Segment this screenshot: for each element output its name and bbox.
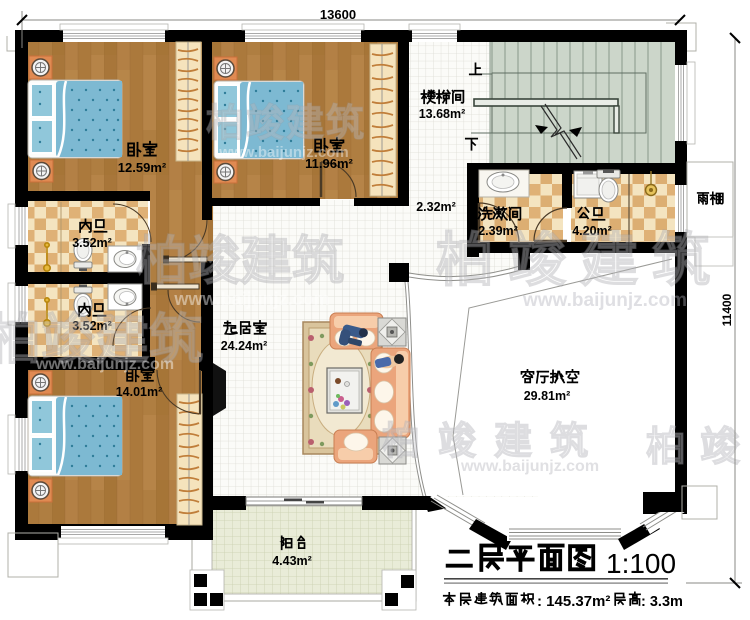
svg-text:3.52m²: 3.52m² bbox=[72, 236, 112, 250]
svg-text:www.baijunjz.com: www.baijunjz.com bbox=[35, 356, 174, 373]
svg-text:29.81m²: 29.81m² bbox=[524, 389, 571, 403]
svg-text:4.43m²: 4.43m² bbox=[272, 554, 312, 568]
svg-text:14.01m²: 14.01m² bbox=[116, 385, 163, 399]
svg-text:1:100: 1:100 bbox=[606, 548, 676, 579]
svg-text:www.baijunjz.com: www.baijunjz.com bbox=[522, 290, 687, 311]
svg-text:柏竣建筑: 柏竣建筑 bbox=[436, 228, 724, 293]
svg-text:13.68m²: 13.68m² bbox=[419, 107, 466, 121]
svg-text:: 145.37m²: : 145.37m² bbox=[537, 593, 610, 610]
svg-text:www.baijunjz.com: www.baijunjz.com bbox=[218, 144, 348, 161]
svg-text:柏竣建筑: 柏竣建筑 bbox=[206, 103, 366, 145]
svg-text:: 3.3m: : 3.3m bbox=[641, 594, 683, 610]
svg-text:13600: 13600 bbox=[320, 7, 356, 22]
svg-text:12.59m²: 12.59m² bbox=[118, 160, 167, 175]
svg-text:www.baijunjz.com: www.baijunjz.com bbox=[173, 289, 329, 309]
svg-text:24.24m²: 24.24m² bbox=[221, 339, 268, 353]
svg-text:柏竣: 柏竣 bbox=[646, 425, 750, 469]
svg-text:柏竣建筑: 柏竣建筑 bbox=[136, 233, 344, 291]
svg-text:柏竣建筑: 柏竣建筑 bbox=[382, 421, 606, 463]
svg-text:2.32m²: 2.32m² bbox=[416, 200, 456, 214]
svg-text:www.baijunjz.com: www.baijunjz.com bbox=[460, 458, 599, 475]
svg-text:11400: 11400 bbox=[720, 293, 734, 326]
